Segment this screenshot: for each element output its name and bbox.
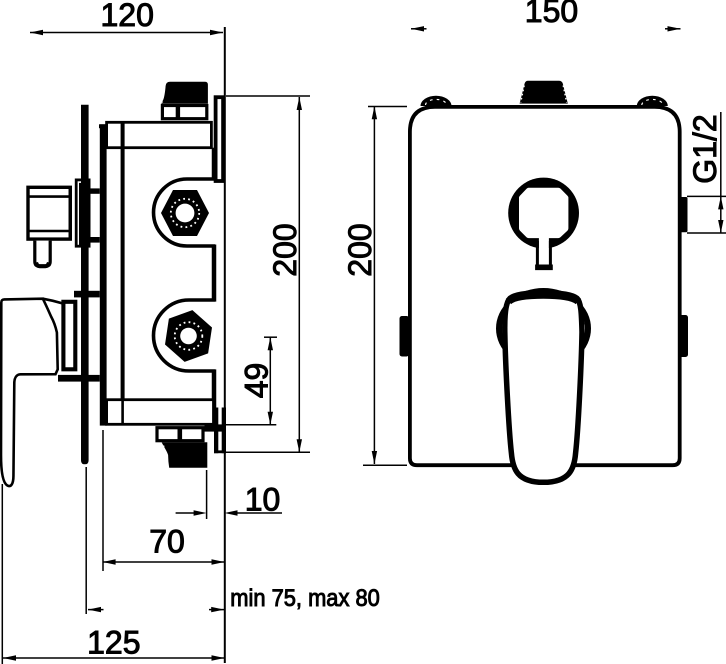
svg-text:120: 120 [101,0,154,33]
svg-text:G1/2: G1/2 [687,114,723,183]
svg-text:49: 49 [238,363,274,399]
svg-text:min 75, max 80: min 75, max 80 [230,585,379,612]
svg-text:200: 200 [342,223,378,276]
svg-text:70: 70 [149,524,185,560]
svg-text:200: 200 [267,223,303,276]
svg-text:10: 10 [245,481,281,517]
svg-text:150: 150 [525,0,578,29]
svg-text:125: 125 [87,624,140,660]
